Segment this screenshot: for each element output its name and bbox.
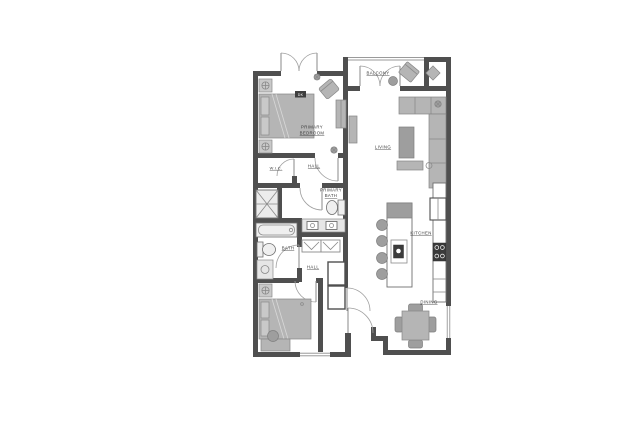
toilet-tank: [338, 200, 345, 215]
label-living: LIVING: [375, 145, 391, 150]
wall: [253, 183, 297, 188]
bed-tag-label: DK: [298, 93, 304, 97]
sink-basin: [396, 249, 401, 254]
primary-bath-fixtures: [302, 200, 345, 232]
dining-table: [402, 311, 429, 340]
plant-icon: [331, 147, 337, 153]
label-hall-lower: HALL: [307, 265, 319, 270]
island-end-cabinet: [387, 203, 412, 218]
dining-furniture: [395, 304, 436, 348]
french-door-bedroom: [281, 53, 317, 71]
wall: [383, 336, 388, 352]
door-arc: [281, 53, 299, 71]
living-furniture: [349, 97, 446, 197]
vanity: [257, 260, 273, 279]
media-console: [397, 161, 423, 170]
wall-desk: [349, 116, 357, 143]
wall: [292, 183, 300, 188]
wall: [302, 232, 347, 237]
door-primary-bath: [300, 188, 322, 210]
lamp-icon: [262, 287, 269, 294]
bar-stool: [377, 236, 388, 247]
lamp-icon: [262, 143, 269, 150]
door-arc: [300, 188, 322, 210]
dining-chair: [409, 340, 423, 348]
bar-stool: [377, 220, 388, 231]
desk-chair: [268, 331, 279, 342]
wall: [383, 350, 451, 355]
wall: [338, 153, 347, 158]
label-hall-upper: HALL: [308, 164, 320, 169]
toilet: [327, 200, 346, 215]
toilet-bowl: [263, 244, 276, 256]
door-arc: [348, 308, 373, 333]
door-hall-to-dining: [347, 288, 370, 311]
door-arc: [347, 288, 370, 311]
primary-bedroom-furniture: DK: [259, 74, 346, 153]
label-bath: BATH: [282, 246, 295, 251]
pillow: [261, 97, 269, 115]
kitchen-casework: [377, 183, 447, 302]
balcony-furniture: [389, 61, 420, 85]
balcony-side-table: [389, 77, 398, 86]
label-wic: W.I.C.: [270, 166, 283, 171]
lamp-icon: [262, 82, 269, 89]
wall: [446, 57, 451, 306]
bar-stool: [377, 253, 388, 264]
bedroom2-furniture: [259, 284, 311, 351]
floor-plan-page: DK: [0, 0, 640, 427]
label-kitchen: KITCHEN: [410, 231, 431, 236]
label-primary-bath-2: BATH: [325, 193, 338, 198]
plant-icon: [314, 74, 320, 80]
range: [433, 243, 446, 261]
coffee-table: [399, 127, 414, 158]
entry-closet: [328, 286, 345, 309]
floor-plan-drawing: DK: [0, 0, 640, 427]
label-dining: DINING: [420, 300, 437, 305]
wall: [253, 153, 315, 158]
door-primary-bedroom: [315, 158, 338, 181]
hall-closets: [302, 240, 345, 309]
wall: [345, 333, 351, 353]
wall: [424, 86, 451, 91]
linen-closet: [321, 240, 340, 252]
plant-icon: [435, 101, 441, 107]
bath-fixtures: [256, 223, 297, 279]
wall: [297, 223, 302, 247]
door-arc: [299, 53, 317, 71]
toilet: [257, 242, 276, 257]
sink: [326, 222, 337, 230]
wall: [253, 218, 302, 223]
door-arc: [360, 66, 380, 86]
toilet-bowl: [327, 201, 338, 215]
label-primary-bath-1: PRIMARY: [320, 188, 342, 193]
label-primary-bedroom-1: PRIMARY: [301, 125, 323, 130]
label-primary-bedroom-2: BEDROOM: [300, 131, 325, 136]
entry-door: [348, 308, 373, 333]
balcony-chair: [398, 61, 419, 82]
wall: [253, 71, 281, 76]
sink: [307, 222, 318, 230]
laundry-closet: [256, 190, 278, 218]
entry-closet: [328, 262, 345, 285]
pillow: [261, 117, 269, 135]
bar-stool: [377, 269, 388, 280]
sofa-sectional-side: [429, 114, 446, 188]
wall: [318, 278, 323, 352]
linen-closet: [302, 240, 321, 252]
wall: [348, 86, 360, 91]
label-balcony: BALCONY: [367, 71, 390, 76]
door-arc: [315, 158, 338, 181]
wall: [343, 57, 348, 288]
armchair: [318, 78, 339, 99]
pillow: [261, 302, 269, 318]
wall: [253, 352, 300, 357]
